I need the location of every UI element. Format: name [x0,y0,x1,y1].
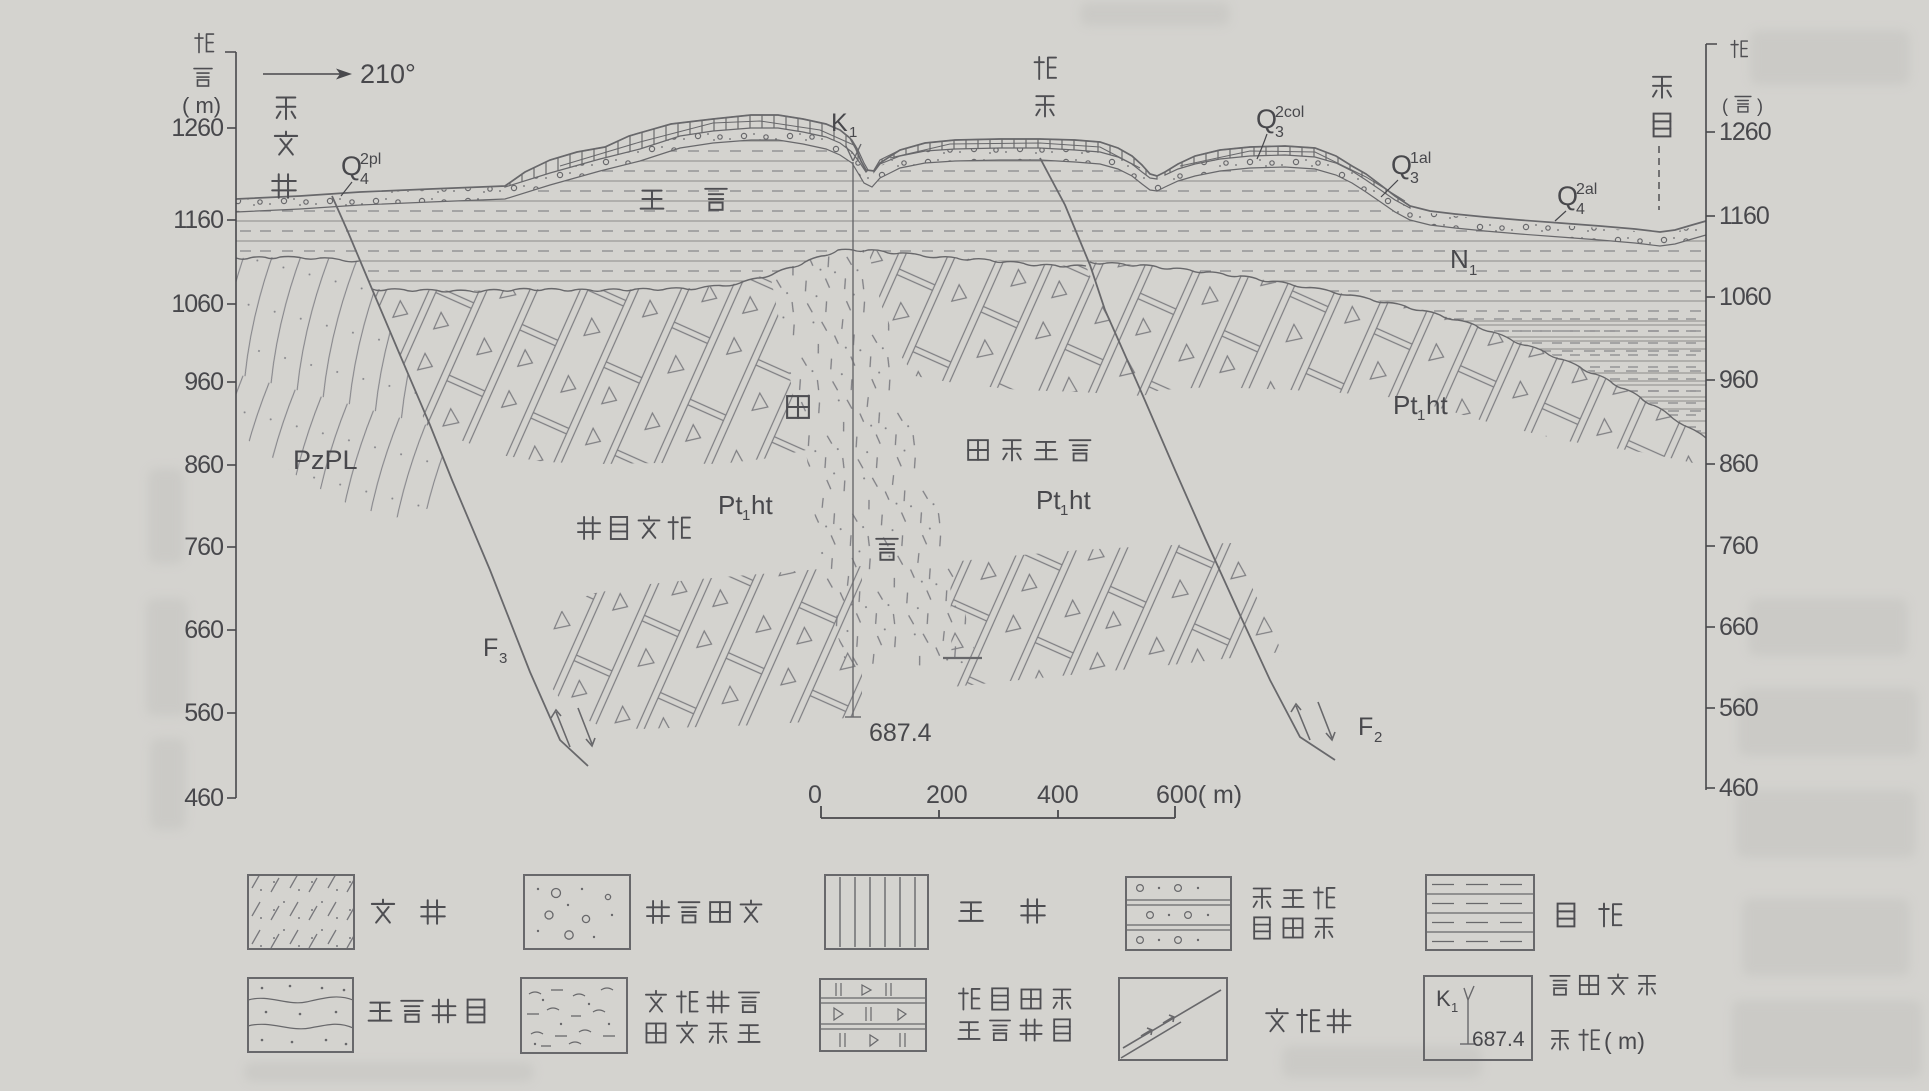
svg-text:660: 660 [1719,613,1758,641]
svg-text:960: 960 [1719,366,1758,394]
svg-text:K: K [1436,986,1451,1011]
svg-text:PzPL: PzPL [293,445,358,475]
svg-text:687.4: 687.4 [1472,1028,1525,1051]
svg-text:960: 960 [184,368,223,396]
svg-text:3: 3 [1275,124,1284,141]
svg-text:Q: Q [341,151,362,181]
svg-text:1160: 1160 [1719,202,1769,230]
svg-text:( m): ( m) [1604,1028,1645,1054]
svg-text:1260: 1260 [1719,118,1771,146]
svg-text:Q: Q [1256,104,1277,134]
svg-text:1: 1 [849,124,857,141]
svg-text:F: F [1358,713,1373,741]
svg-text:3: 3 [499,650,507,667]
svg-text:760: 760 [184,533,223,561]
svg-text:687.4: 687.4 [869,719,932,747]
svg-text:Pt: Pt [718,490,743,520]
svg-text:( m): ( m) [182,93,221,118]
svg-text:K: K [831,109,848,137]
svg-text:600( m): 600( m) [1156,781,1242,809]
svg-text:760: 760 [1719,532,1758,560]
svg-text:560: 560 [1719,694,1758,722]
svg-text:1260: 1260 [171,114,223,142]
svg-text:2col: 2col [1275,104,1304,121]
svg-text:ht: ht [1069,485,1091,515]
svg-text:660: 660 [184,616,223,644]
svg-text:1al: 1al [1410,150,1431,167]
svg-text:3: 3 [1410,170,1419,187]
svg-text:560: 560 [184,699,223,727]
svg-text:210°: 210° [360,59,416,89]
svg-text:860: 860 [1719,450,1758,478]
svg-text:(: ( [1722,96,1728,116]
svg-text:1060: 1060 [1719,283,1771,311]
svg-text:460: 460 [1719,774,1758,802]
svg-text:4: 4 [1576,201,1585,218]
svg-text:4: 4 [360,171,369,188]
svg-text:2pl: 2pl [360,151,381,168]
svg-text:1: 1 [1417,407,1425,424]
svg-text:1: 1 [1469,262,1477,279]
svg-text:1060: 1060 [171,290,223,318]
svg-text:Q: Q [1391,150,1412,180]
svg-text:N: N [1450,244,1469,274]
svg-text:): ) [1757,96,1763,116]
svg-text:2al: 2al [1576,181,1597,198]
svg-text:Pt: Pt [1393,390,1418,420]
svg-text:0: 0 [808,781,822,809]
svg-text:Q: Q [1557,181,1578,211]
svg-text:ht: ht [751,490,773,520]
svg-text:1: 1 [1060,502,1068,519]
svg-text:860: 860 [184,451,223,479]
svg-text:1: 1 [1451,1000,1458,1015]
svg-text:ht: ht [1426,390,1448,420]
svg-text:1160: 1160 [173,206,223,234]
svg-text:1: 1 [742,507,750,524]
svg-text:2: 2 [1374,729,1382,746]
svg-text:400: 400 [1037,781,1079,809]
svg-text:F: F [483,634,498,662]
svg-text:Pt: Pt [1036,485,1061,515]
svg-text:460: 460 [184,784,223,812]
svg-text:200: 200 [926,781,968,809]
